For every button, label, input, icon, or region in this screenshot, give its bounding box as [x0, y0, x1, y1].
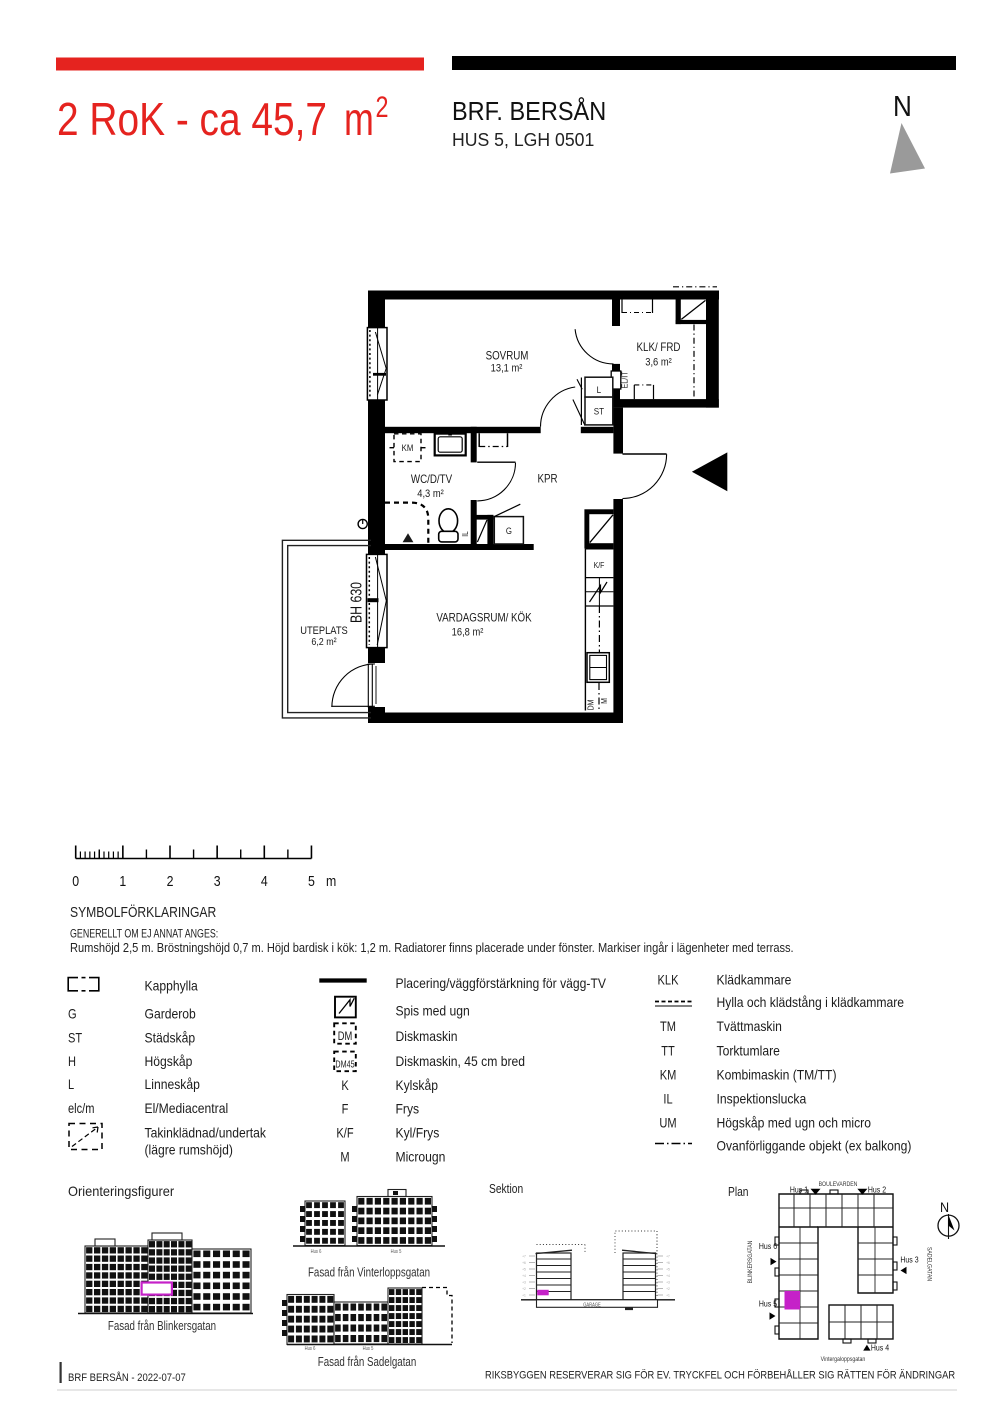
svg-text:K/F: K/F — [336, 1125, 354, 1140]
svg-text:Hus 6: Hus 6 — [311, 1249, 322, 1254]
svg-text:Frys: Frys — [396, 1101, 420, 1117]
svg-text:2 RoK - ca 45,7: 2 RoK - ca 45,7 — [57, 94, 327, 146]
svg-text:2: 2 — [376, 90, 389, 123]
svg-text:RIKSBYGGEN RESERVERAR SIG FÖR: RIKSBYGGEN RESERVERAR SIG FÖR EV. TRYCKF… — [485, 1368, 955, 1382]
svg-text:1: 1 — [119, 873, 126, 889]
svg-text:0: 0 — [72, 873, 79, 889]
svg-text:KLK/ FRD: KLK/ FRD — [637, 341, 681, 354]
svg-text:WC/D/TV: WC/D/TV — [411, 473, 453, 486]
svg-text:IL: IL — [460, 531, 470, 536]
svg-text:Linneskåp: Linneskåp — [145, 1077, 200, 1093]
svg-text:Placering/väggförstärkning för: Placering/väggförstärkning för vägg-TV — [396, 975, 607, 991]
svg-text:ST: ST — [68, 1031, 83, 1046]
svg-text:F: F — [342, 1101, 349, 1116]
svg-text:GENERELLT OM EJ ANNAT ANGES:: GENERELLT OM EJ ANNAT ANGES: — [70, 927, 218, 941]
svg-text:Städskåp: Städskåp — [145, 1030, 196, 1046]
svg-text:GARAGE: GARAGE — [583, 1302, 601, 1307]
svg-text:K/F: K/F — [594, 560, 605, 570]
svg-text:BRF BERSÅN - 2022-07-07: BRF BERSÅN - 2022-07-07 — [68, 1370, 186, 1384]
svg-text:Högskåp: Högskåp — [145, 1053, 193, 1069]
svg-text:Hylla och klädstång i klädkamm: Hylla och klädstång i klädkammare — [717, 994, 905, 1010]
svg-text:6,2 m²: 6,2 m² — [311, 636, 337, 648]
svg-text:+6: +6 — [522, 1261, 526, 1265]
svg-text:+7: +7 — [522, 1254, 526, 1258]
svg-text:+2: +2 — [522, 1287, 526, 1291]
svg-text:KLK: KLK — [658, 972, 680, 987]
svg-text:Rumshöjd 2,5 m. Bröstningshöjd: Rumshöjd 2,5 m. Bröstningshöjd 0,7 m. Hö… — [70, 940, 794, 955]
svg-text:+6: +6 — [666, 1261, 670, 1265]
svg-text:16,8 m²: 16,8 m² — [452, 627, 484, 639]
svg-text:M: M — [340, 1149, 349, 1164]
svg-text:Kyl/Frys: Kyl/Frys — [396, 1125, 440, 1141]
svg-text:G: G — [68, 1007, 77, 1022]
svg-text:DM: DM — [586, 700, 596, 711]
svg-text:KM: KM — [660, 1067, 677, 1082]
svg-text:VARDAGSRUM/ KÖK: VARDAGSRUM/ KÖK — [436, 612, 531, 625]
svg-text:EL/IT: EL/IT — [620, 371, 629, 389]
svg-text:Spis med ugn: Spis med ugn — [396, 1003, 470, 1019]
svg-text:+2: +2 — [666, 1287, 670, 1291]
svg-text:Kombimaskin (TM/TT): Kombimaskin (TM/TT) — [717, 1067, 837, 1083]
svg-text:3,6 m²: 3,6 m² — [645, 357, 672, 369]
svg-text:HUS 5, LGH 0501: HUS 5, LGH 0501 — [452, 130, 594, 150]
svg-text:Hus 5: Hus 5 — [363, 1346, 374, 1351]
svg-text:Hus 5: Hus 5 — [759, 1299, 777, 1309]
svg-text:UTEPLATS: UTEPLATS — [300, 625, 348, 637]
svg-text:N: N — [940, 1199, 949, 1215]
svg-text:+4: +4 — [666, 1274, 670, 1278]
svg-text:IL: IL — [663, 1091, 672, 1106]
svg-text:4: 4 — [261, 873, 268, 889]
svg-text:+3: +3 — [666, 1280, 670, 1284]
svg-text:ST: ST — [594, 406, 605, 417]
svg-text:Fasad från Blinkersgatan: Fasad från Blinkersgatan — [108, 1320, 216, 1333]
svg-text:2: 2 — [167, 873, 174, 889]
svg-text:Torktumlare: Torktumlare — [717, 1043, 780, 1059]
svg-text:4,3 m²: 4,3 m² — [417, 488, 444, 500]
svg-text:+4: +4 — [522, 1274, 526, 1278]
svg-text:BLINKERSGATAN: BLINKERSGATAN — [748, 1241, 755, 1284]
svg-text:H: H — [68, 1054, 76, 1069]
svg-text:SADELGATAN: SADELGATAN — [925, 1247, 932, 1281]
svg-text:+1: +1 — [666, 1293, 670, 1297]
svg-text:DM: DM — [338, 1030, 353, 1043]
svg-text:Diskmaskin: Diskmaskin — [396, 1028, 458, 1044]
svg-text:+5: +5 — [666, 1267, 670, 1271]
svg-text:Takinklädnad/undertak: Takinklädnad/undertak — [145, 1125, 267, 1141]
svg-text:Fasad från Sadelgatan: Fasad från Sadelgatan — [318, 1356, 416, 1369]
svg-text:DM45: DM45 — [335, 1058, 354, 1069]
svg-text:N: N — [893, 90, 912, 123]
svg-text:Plan: Plan — [728, 1186, 749, 1199]
svg-text:El/Mediacentral: El/Mediacentral — [145, 1100, 229, 1116]
svg-text:L: L — [68, 1077, 74, 1092]
svg-text:Inspektionslucka: Inspektionslucka — [717, 1091, 808, 1107]
svg-text:m: m — [326, 873, 336, 889]
svg-text:Kylskåp: Kylskåp — [396, 1077, 438, 1093]
svg-text:BOULEVARDEN: BOULEVARDEN — [819, 1182, 858, 1189]
svg-text:Tvättmaskin: Tvättmaskin — [717, 1018, 782, 1034]
svg-text:13,1 m²: 13,1 m² — [491, 363, 523, 375]
svg-text:KM: KM — [402, 442, 414, 453]
svg-text:m: m — [344, 94, 374, 145]
svg-text:+3: +3 — [522, 1280, 526, 1284]
svg-text:Hus 1: Hus 1 — [790, 1185, 808, 1195]
svg-text:+7: +7 — [666, 1254, 670, 1258]
svg-text:Hus 5: Hus 5 — [391, 1249, 402, 1254]
svg-text:+1: +1 — [522, 1293, 526, 1297]
svg-text:Ovanförliggande objekt (ex ba: Ovanförliggande objekt (ex balkong) — [717, 1138, 912, 1154]
svg-text:Klädkammare: Klädkammare — [717, 972, 792, 988]
svg-text:UM: UM — [659, 1115, 676, 1130]
svg-text:Garderob: Garderob — [145, 1006, 196, 1022]
svg-text:Diskmaskin, 45 cm bred: Diskmaskin, 45 cm bred — [396, 1053, 526, 1069]
svg-text:G: G — [506, 525, 512, 536]
svg-text:K: K — [341, 1078, 349, 1093]
svg-text:Hus 6: Hus 6 — [305, 1346, 316, 1351]
svg-text:L: L — [597, 384, 602, 395]
svg-text:Kapphylla: Kapphylla — [145, 978, 199, 994]
svg-text:Fasad från Vinterloppsgatan: Fasad från Vinterloppsgatan — [308, 1266, 430, 1279]
svg-text:Orienteringsfigurer: Orienteringsfigurer — [68, 1184, 175, 1199]
svg-text:Hus 4: Hus 4 — [871, 1343, 890, 1353]
svg-text:KPR: KPR — [537, 473, 557, 486]
svg-text:SOVRUM: SOVRUM — [486, 350, 529, 363]
svg-text:BRF. BERSÅN: BRF. BERSÅN — [452, 97, 606, 126]
svg-text:Microugn: Microugn — [396, 1149, 446, 1165]
svg-text:Högskåp med ugn och micro: Högskåp med ugn och micro — [717, 1115, 871, 1131]
svg-text:TT: TT — [661, 1043, 675, 1058]
svg-text:Sektion: Sektion — [489, 1183, 523, 1196]
svg-text:Hus 2: Hus 2 — [868, 1185, 886, 1195]
svg-text:TM: TM — [660, 1019, 676, 1034]
svg-text:BH 630: BH 630 — [348, 582, 366, 623]
svg-text:5: 5 — [308, 873, 315, 889]
svg-text:+5: +5 — [522, 1267, 526, 1271]
svg-text:3: 3 — [214, 873, 221, 889]
svg-text:(lägre rumshöjd): (lägre rumshöjd) — [145, 1142, 233, 1158]
svg-text:M: M — [599, 698, 609, 704]
svg-text:elc/m: elc/m — [68, 1101, 94, 1116]
svg-text:Hus 6: Hus 6 — [759, 1241, 777, 1251]
svg-text:Hus 3: Hus 3 — [900, 1255, 918, 1265]
svg-text:Vintergaloppsgatan: Vintergaloppsgatan — [821, 1357, 866, 1364]
svg-text:SYMBOLFÖRKLARINGAR: SYMBOLFÖRKLARINGAR — [70, 904, 216, 920]
